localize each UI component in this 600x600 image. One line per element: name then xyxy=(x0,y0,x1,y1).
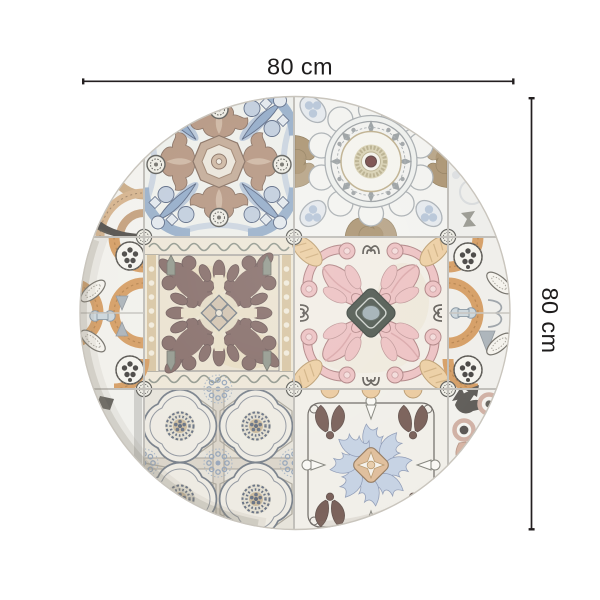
svg-text:80 cm: 80 cm xyxy=(267,54,333,80)
svg-text:80 cm: 80 cm xyxy=(537,288,563,354)
